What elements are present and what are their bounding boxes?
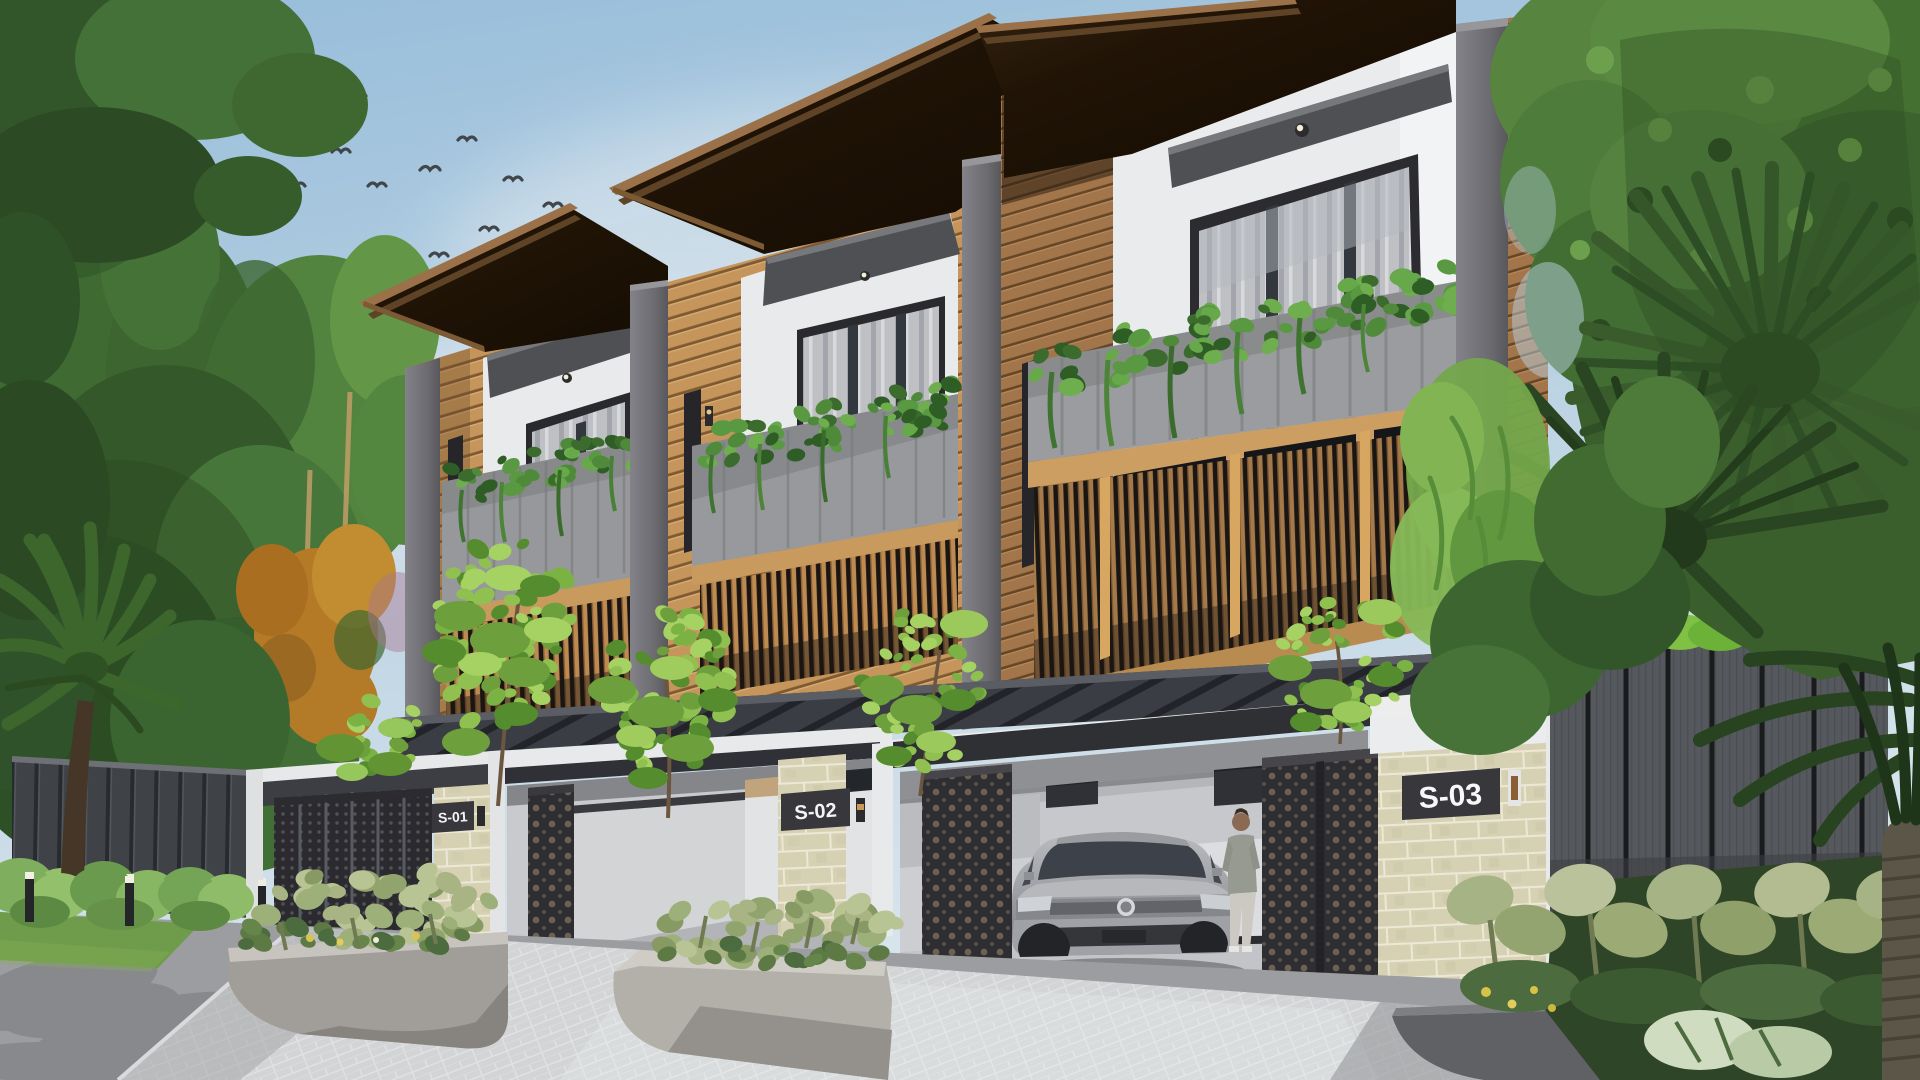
svg-text:S-01: S-01 (438, 808, 469, 826)
svg-text:S-02: S-02 (794, 800, 838, 825)
svg-text:S-03: S-03 (1418, 778, 1484, 815)
